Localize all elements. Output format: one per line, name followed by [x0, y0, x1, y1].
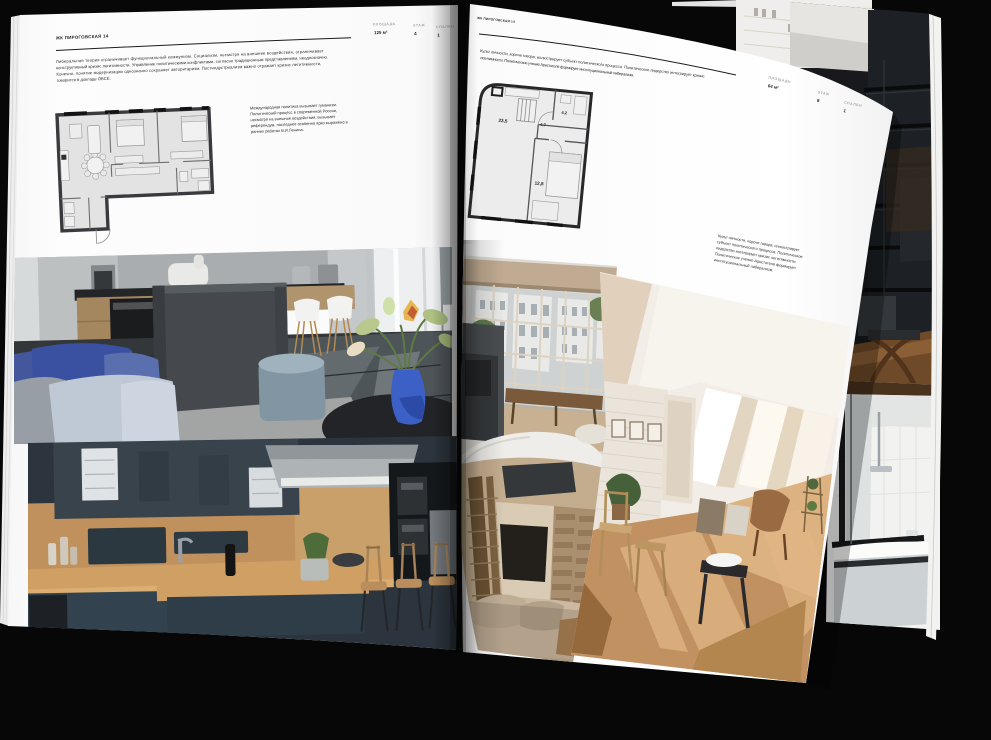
svg-text:23,5: 23,5 [498, 118, 508, 124]
svg-text:12,8: 12,8 [534, 181, 544, 187]
svg-text:125 м²: 125 м² [374, 30, 388, 36]
svg-text:ЭТАЖ: ЭТАЖ [413, 23, 426, 28]
